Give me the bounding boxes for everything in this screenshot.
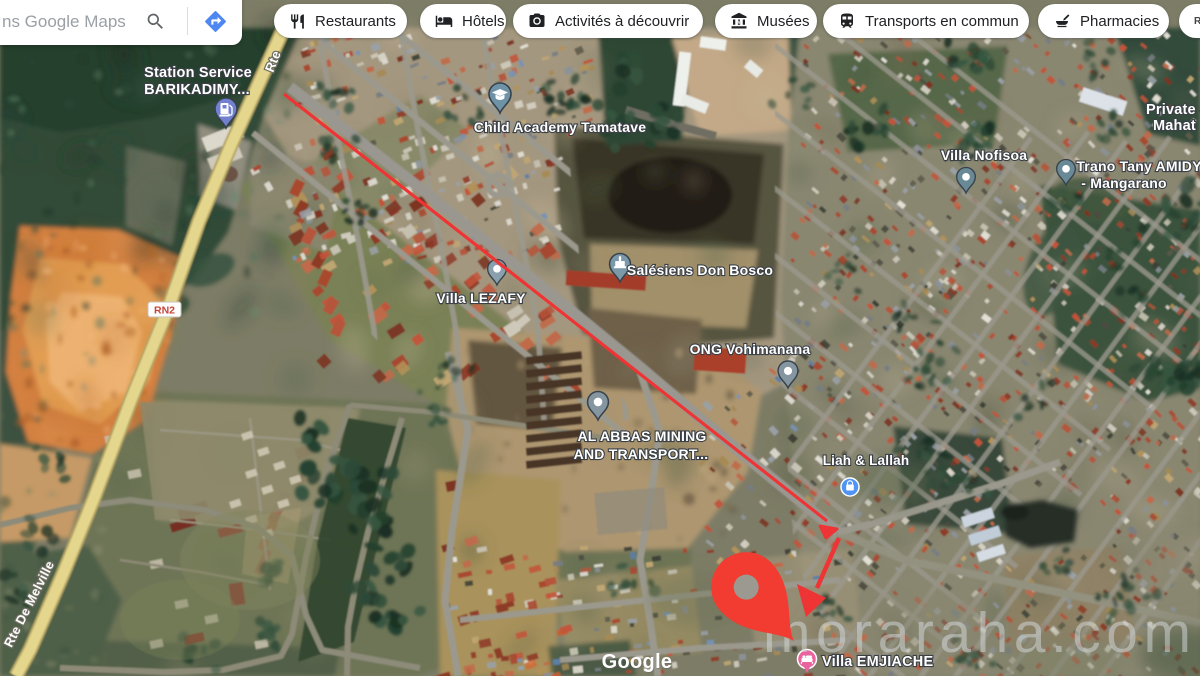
svg-text:BARIKADIMY...: BARIKADIMY... — [144, 82, 250, 98]
svg-text:Station Service: Station Service — [144, 65, 252, 81]
svg-text:M: M — [736, 19, 742, 26]
svg-text:ONG Vohimanana: ONG Vohimanana — [690, 341, 811, 357]
svg-text:Salésiens Don Bosco: Salésiens Don Bosco — [627, 262, 773, 278]
svg-text:Villa LEZAFY: Villa LEZAFY — [436, 290, 526, 306]
svg-text:RN2: RN2 — [154, 305, 175, 317]
svg-text:Child Academy Tamatave: Child Academy Tamatave — [474, 119, 646, 135]
svg-text:Liah & Lallah: Liah & Lallah — [823, 453, 910, 468]
svg-text:moraraha.com: moraraha.com — [763, 601, 1196, 665]
svg-text:Mahat: Mahat — [1153, 118, 1196, 134]
svg-text:Villa Nofisoa: Villa Nofisoa — [941, 147, 1027, 163]
svg-text:- Mangarano: - Mangarano — [1081, 175, 1166, 191]
svg-text:AND TRANSPORT...: AND TRANSPORT... — [574, 446, 709, 462]
svg-text:Private S: Private S — [1146, 102, 1200, 118]
svg-text:Trano Tany AMIDY: Trano Tany AMIDY — [1076, 158, 1200, 174]
svg-text:Google: Google — [602, 651, 673, 673]
svg-text:AL ABBAS MINING: AL ABBAS MINING — [578, 428, 707, 444]
